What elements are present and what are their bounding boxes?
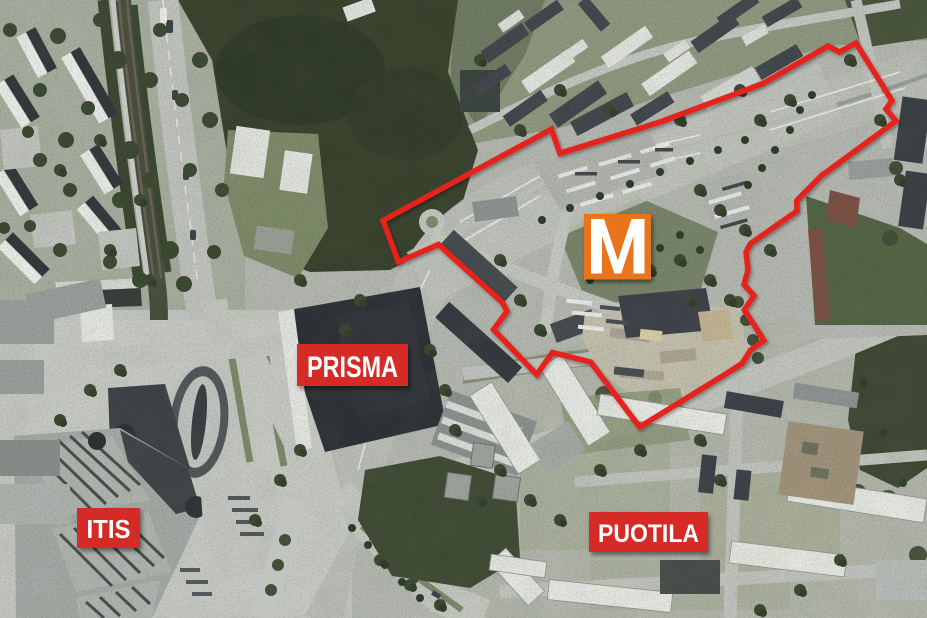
svg-text:PRISMA: PRISMA — [307, 351, 398, 384]
svg-text:ITIS: ITIS — [87, 514, 131, 544]
svg-text:PUOTILA: PUOTILA — [598, 520, 699, 548]
